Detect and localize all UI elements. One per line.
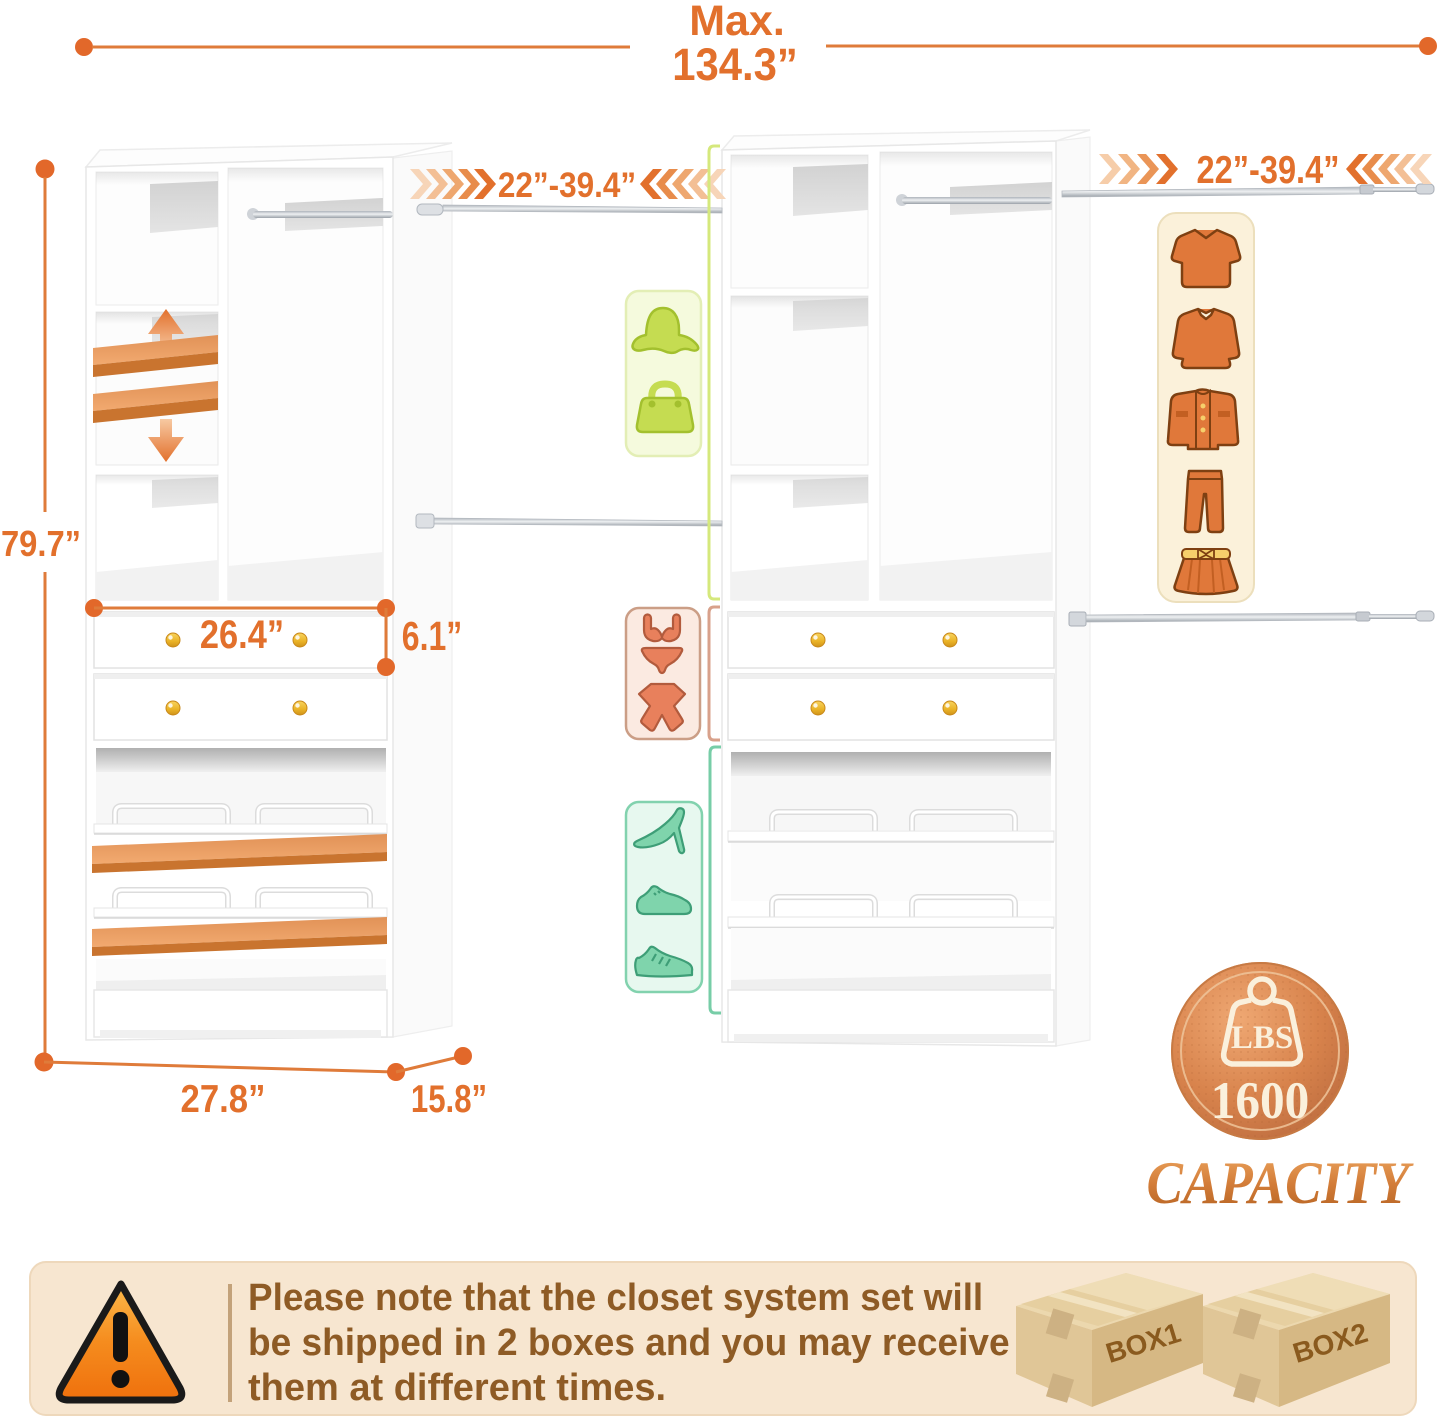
svg-text:79.7”: 79.7” xyxy=(1,525,81,565)
svg-text:LBS: LBS xyxy=(1231,1020,1293,1056)
svg-text:1600: 1600 xyxy=(1211,1071,1310,1130)
svg-text:Please note that the closet sy: Please note that the closet system set w… xyxy=(248,1275,983,1318)
svg-text:CAPACITY: CAPACITY xyxy=(1147,1151,1415,1217)
svg-text:27.8”: 27.8” xyxy=(181,1077,266,1120)
svg-text:them at different times.: them at different times. xyxy=(248,1367,666,1409)
svg-text:be shipped in 2 boxes and you: be shipped in 2 boxes and you may receiv… xyxy=(248,1321,1010,1364)
svg-text:15.8”: 15.8” xyxy=(411,1078,487,1121)
svg-text:22”-39.4”: 22”-39.4” xyxy=(498,167,636,206)
svg-text:6.1”: 6.1” xyxy=(402,613,462,659)
svg-text:134.3”: 134.3” xyxy=(672,41,798,91)
svg-text:Max.: Max. xyxy=(689,0,785,45)
svg-text:22”-39.4”: 22”-39.4” xyxy=(1197,147,1340,192)
svg-text:26.4”: 26.4” xyxy=(200,612,284,657)
